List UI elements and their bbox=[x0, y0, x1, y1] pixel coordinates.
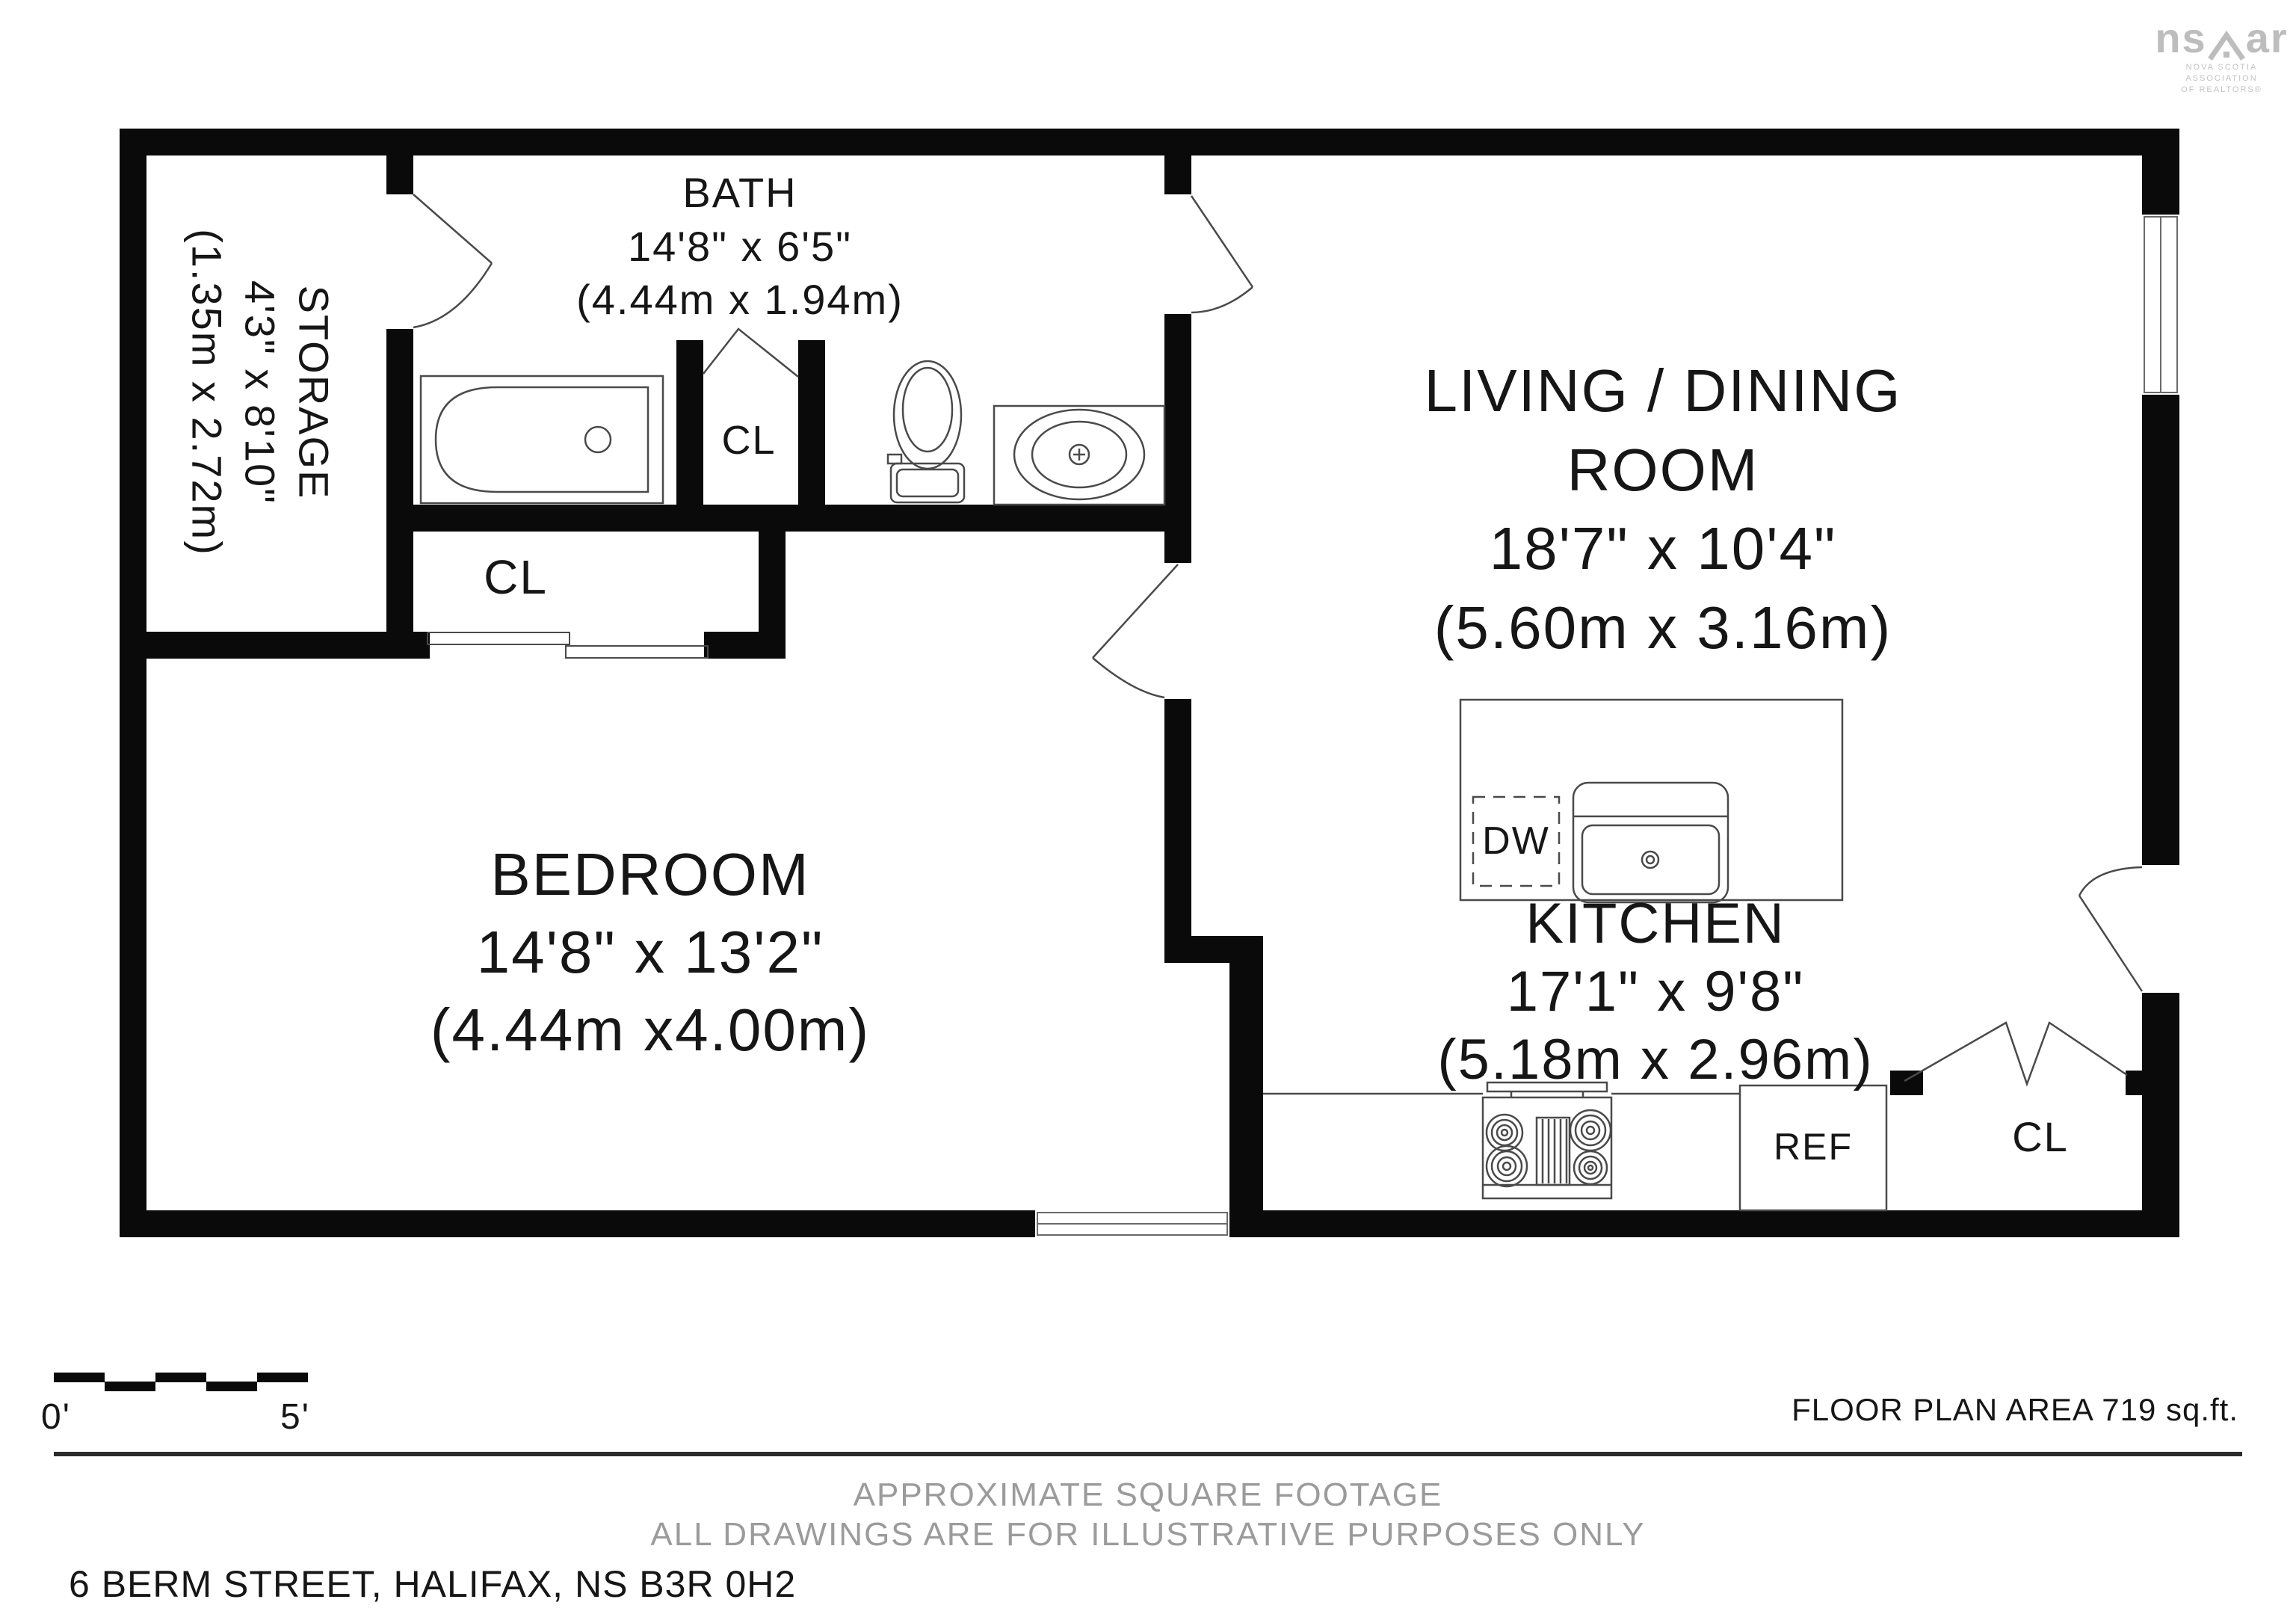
address: 6 BERM STREET, HALIFAX, NS B3R 0H2 bbox=[69, 1562, 1115, 1606]
floor-plan-area-label: FLOOR PLAN AREA 719 sq.ft. bbox=[1491, 1392, 2238, 1428]
bath-door-arc bbox=[1191, 196, 1253, 312]
bedroom-name: BEDROOM bbox=[314, 836, 987, 914]
nsar-logo-sub1: NOVA SCOTIA ASSOCIATION bbox=[2152, 62, 2291, 84]
bedroom-dims-metric: (4.44m x4.00m) bbox=[314, 991, 987, 1069]
storage-name: STORAGE bbox=[287, 198, 341, 587]
bath-dims-imperial: 14'8" x 6'5" bbox=[478, 220, 1002, 274]
bath-name: BATH bbox=[478, 166, 1002, 220]
bedroom-door-arc bbox=[1093, 564, 1178, 697]
nsar-logo-wordmark: ns ar bbox=[2152, 13, 2291, 62]
island-sink-icon bbox=[1573, 783, 1728, 902]
bedroom-closet-bypass-door bbox=[428, 632, 708, 658]
floor-plan-page: STORAGE 4'3" x 8'10" (1.35m x 2.72m) BAT… bbox=[0, 0, 2296, 1623]
footer-note-2: ALL DRAWINGS ARE FOR ILLUSTRATIVE PURPOS… bbox=[401, 1516, 1895, 1553]
bathtub-icon bbox=[421, 376, 663, 503]
nsar-logo: ns ar NOVA SCOTIA ASSOCIATION OF REALTOR… bbox=[2152, 13, 2291, 96]
nsar-logo-sub2: OF REALTORS® bbox=[2152, 84, 2291, 96]
bedroom-closet-text: CL bbox=[484, 550, 548, 604]
scale-end-text: 5' bbox=[280, 1397, 310, 1437]
storage-dims-metric: (1.35m x 2.72m) bbox=[179, 198, 233, 587]
storage-dims-imperial: 4'3" x 8'10" bbox=[233, 198, 287, 587]
living-room-window-glazing bbox=[2144, 217, 2177, 392]
bedroom-closet-label: CL bbox=[448, 549, 583, 605]
house-icon bbox=[2207, 29, 2246, 62]
entry-closet-text: CL bbox=[2012, 1113, 2069, 1160]
room-label-kitchen: KITCHEN 17'1" x 9'8" (5.18m x 2.96m) bbox=[1319, 890, 1992, 1094]
footer-note-1-text: APPROXIMATE SQUARE FOOTAGE bbox=[854, 1476, 1443, 1513]
bedroom-dims-imperial: 14'8" x 13'2" bbox=[314, 914, 987, 991]
kitchen-dims-imperial: 17'1" x 9'8" bbox=[1319, 958, 1992, 1026]
footer-note-2-text: ALL DRAWINGS ARE FOR ILLUSTRATIVE PURPOS… bbox=[650, 1516, 1645, 1553]
scale-end-label: 5' bbox=[280, 1396, 340, 1438]
scale-dash bbox=[54, 1373, 105, 1382]
refrigerator-label: REF bbox=[1740, 1125, 1886, 1168]
kitchen-island bbox=[1460, 700, 1842, 900]
room-label-living: LIVING / DINING ROOM 18'7" x 10'4" (5.60… bbox=[1289, 351, 2037, 667]
entry-closet-label: CL bbox=[1973, 1112, 2108, 1161]
refrigerator-text: REF bbox=[1774, 1126, 1853, 1168]
room-label-storage: STORAGE 4'3" x 8'10" (1.35m x 2.72m) bbox=[179, 198, 340, 587]
nsar-logo-ar: ar bbox=[2246, 13, 2289, 62]
bedroom-window-glazing bbox=[1037, 1213, 1227, 1235]
footer-note-1: APPROXIMATE SQUARE FOOTAGE bbox=[401, 1476, 1895, 1514]
scale-dash bbox=[206, 1382, 257, 1391]
living-dims-metric: (5.60m x 3.16m) bbox=[1289, 588, 2037, 668]
living-dims-imperial: 18'7" x 10'4" bbox=[1289, 509, 2037, 588]
kitchen-name: KITCHEN bbox=[1319, 890, 1992, 958]
toilet-icon bbox=[888, 361, 964, 502]
living-name2: ROOM bbox=[1289, 431, 2037, 510]
fixtures-layer bbox=[0, 0, 2296, 1623]
scale-dash bbox=[257, 1373, 308, 1382]
room-label-bedroom: BEDROOM 14'8" x 13'2" (4.44m x4.00m) bbox=[314, 836, 987, 1069]
entry-door-arc bbox=[2079, 867, 2142, 991]
room-label-bath: BATH 14'8" x 6'5" (4.44m x 1.94m) bbox=[478, 166, 1002, 327]
stove-icon bbox=[1483, 1097, 1611, 1198]
dishwasher-text: DW bbox=[1482, 819, 1550, 863]
scale-start-text: 0' bbox=[41, 1397, 71, 1437]
kitchen-dims-metric: (5.18m x 2.96m) bbox=[1319, 1026, 1992, 1094]
address-text: 6 BERM STREET, HALIFAX, NS B3R 0H2 bbox=[69, 1563, 796, 1605]
bath-closet-bifold-door bbox=[703, 329, 798, 377]
scale-dash bbox=[105, 1382, 155, 1391]
living-name: LIVING / DINING bbox=[1289, 351, 2037, 431]
nsar-logo-subtext: NOVA SCOTIA ASSOCIATION OF REALTORS® bbox=[2152, 62, 2291, 96]
bath-dims-metric: (4.44m x 1.94m) bbox=[478, 273, 1002, 327]
scale-dash bbox=[155, 1373, 206, 1382]
scale-start-label: 0' bbox=[41, 1396, 101, 1438]
floor-plan-area-text: FLOOR PLAN AREA 719 sq.ft. bbox=[1792, 1392, 2238, 1427]
nsar-logo-ns: ns bbox=[2155, 13, 2206, 62]
bath-closet-text: CL bbox=[721, 418, 776, 463]
vanity-sink-icon bbox=[994, 406, 1164, 505]
dishwasher-label: DW bbox=[1473, 819, 1559, 863]
footer-rule bbox=[54, 1452, 2242, 1456]
bath-closet-label: CL bbox=[704, 417, 794, 464]
